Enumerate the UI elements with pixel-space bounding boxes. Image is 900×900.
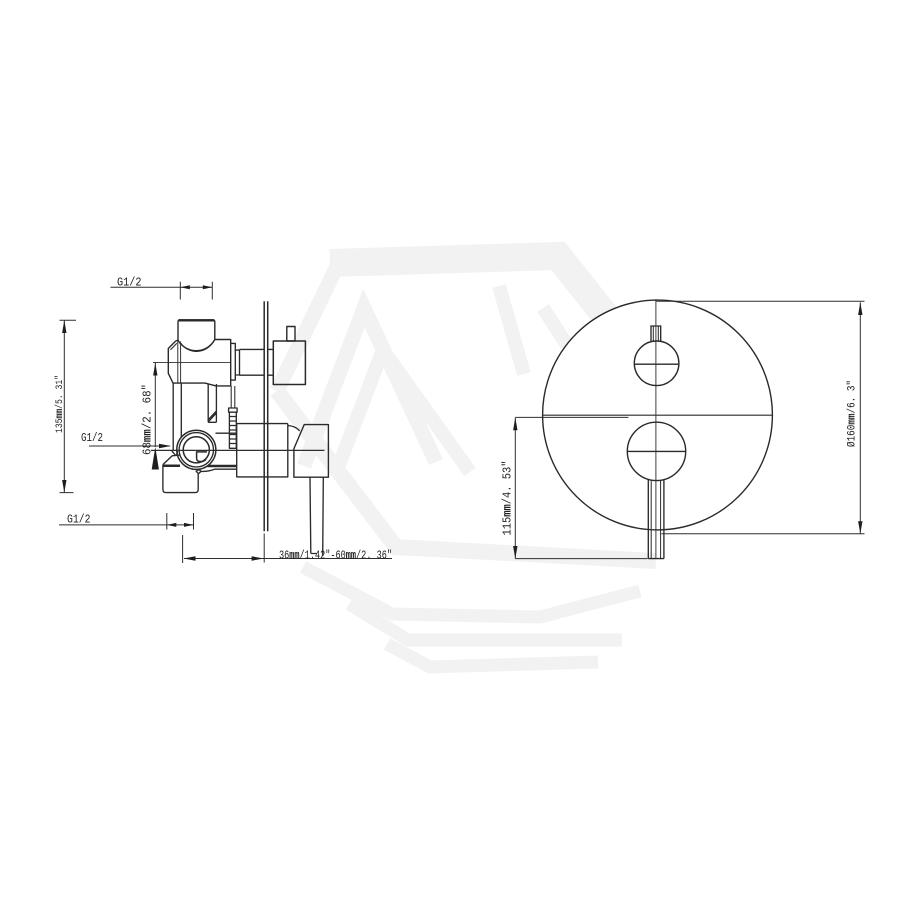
- svg-text:G1/2: G1/2: [81, 432, 103, 445]
- svg-text:G1/2: G1/2: [117, 277, 142, 290]
- svg-text:115mm/4. 53": 115mm/4. 53": [502, 461, 515, 536]
- svg-text:Ø160mm/6. 3": Ø160mm/6. 3": [847, 380, 859, 447]
- svg-text:36mm/1.42"-60mm/2. 36": 36mm/1.42"-60mm/2. 36": [279, 549, 392, 562]
- svg-text:G1/2: G1/2: [67, 513, 91, 526]
- svg-text:68mm/2. 68": 68mm/2. 68": [141, 384, 155, 455]
- svg-text:135mm/5. 31": 135mm/5. 31": [54, 375, 66, 433]
